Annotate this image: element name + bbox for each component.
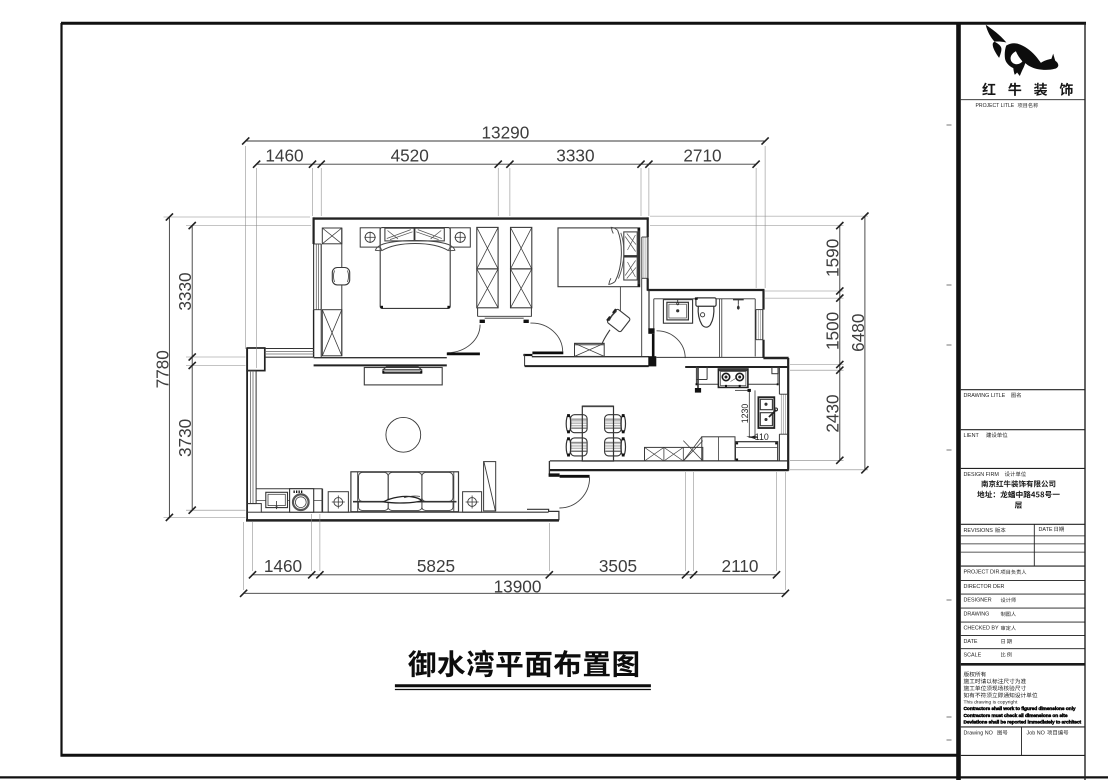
svg-text:Contractors shall work to figu: Contractors shall work to figured dimens… — [964, 706, 1076, 712]
svg-text:6480: 6480 — [848, 314, 868, 352]
svg-text:4520: 4520 — [391, 145, 429, 165]
svg-text:2110: 2110 — [722, 556, 759, 576]
svg-text:This drawing is copyright: This drawing is copyright — [964, 700, 1018, 706]
svg-text:DESIGN FIRM: DESIGN FIRM — [964, 472, 1000, 478]
svg-text:REVISIONS: REVISIONS — [964, 528, 994, 534]
svg-text:1500: 1500 — [823, 312, 843, 350]
svg-text:DATE: DATE — [964, 639, 978, 645]
svg-text:PROJECT LITLE: PROJECT LITLE — [976, 103, 1015, 109]
svg-text:1460: 1460 — [264, 556, 302, 576]
svg-text:DATE: DATE — [1039, 527, 1053, 533]
svg-text:Drawing NO: Drawing NO — [964, 730, 993, 736]
svg-text:Deviations shall be reported i: Deviations shall be reported immediately… — [964, 719, 1082, 725]
svg-text:LIENT: LIENT — [964, 433, 980, 439]
svg-text:DESIGNER: DESIGNER — [964, 598, 992, 604]
svg-text:13900: 13900 — [494, 576, 542, 596]
svg-text:DIRECTOR DER: DIRECTOR DER — [964, 584, 1005, 590]
svg-text:2710: 2710 — [683, 145, 721, 165]
svg-text:2430: 2430 — [823, 394, 843, 432]
svg-text:CHECKED BY: CHECKED BY — [964, 626, 999, 632]
svg-text:1460: 1460 — [265, 145, 303, 165]
svg-text:7780: 7780 — [152, 350, 172, 388]
svg-text:5825: 5825 — [417, 556, 455, 576]
svg-text:3505: 3505 — [599, 556, 637, 576]
svg-text:13290: 13290 — [482, 122, 530, 142]
svg-text:DRAWING: DRAWING — [964, 612, 990, 618]
svg-text:Job NO: Job NO — [1027, 730, 1045, 736]
svg-text:3330: 3330 — [556, 145, 594, 165]
svg-text:Contractors must check all dim: Contractors must check all dimensions on… — [964, 713, 1068, 719]
svg-text:1230: 1230 — [740, 404, 750, 424]
svg-text:DRAWING LITLE: DRAWING LITLE — [964, 393, 1006, 399]
svg-text:SCALE: SCALE — [964, 652, 982, 658]
svg-text:3330: 3330 — [175, 272, 195, 310]
svg-text:PROJECT DIR.: PROJECT DIR. — [964, 570, 1001, 576]
svg-text:3730: 3730 — [175, 419, 195, 457]
svg-text:1590: 1590 — [823, 239, 843, 277]
